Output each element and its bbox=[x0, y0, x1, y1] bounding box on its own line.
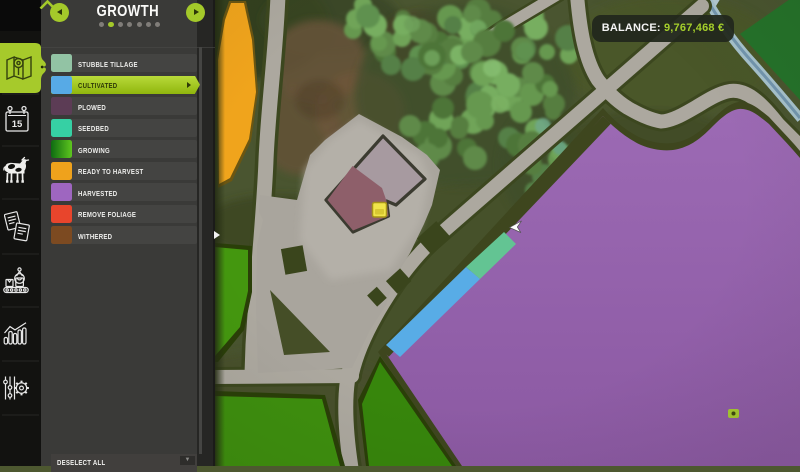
svg-text:15: 15 bbox=[12, 119, 23, 130]
